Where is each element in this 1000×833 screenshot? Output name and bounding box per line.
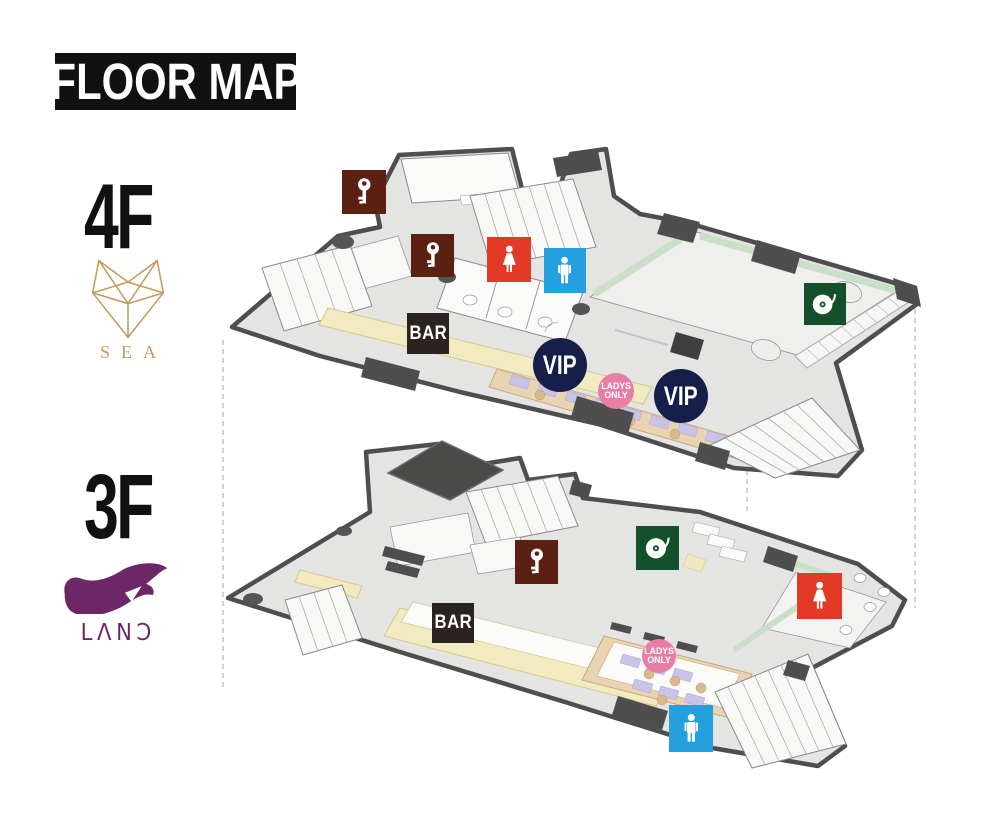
dj-booth-icon [642, 530, 674, 565]
brand-name-land: LΛNƆ [64, 620, 167, 646]
dj-booth-badge-3f [636, 526, 679, 570]
vip-label: VIP [543, 350, 577, 381]
mens-restroom-icon [549, 253, 580, 289]
key-icon [521, 544, 553, 579]
bar-label: BAR [409, 323, 447, 345]
ladys-only-line2: ONLY [604, 390, 627, 401]
brand-name-sea: SEA [64, 342, 192, 363]
floor-label-4f: 4F [84, 180, 152, 254]
ladys-only-line2: ONLY [647, 655, 670, 666]
womens-restroom-badge-4f [487, 237, 531, 282]
page-title: FLOOR MAP [55, 53, 296, 110]
mens-restroom-icon [675, 710, 708, 748]
womens-restroom-badge-3f [797, 573, 842, 619]
dj-booth-badge-4f [804, 283, 846, 325]
bar-badge-4f: BAR [407, 313, 449, 354]
room-key-badge-3f [515, 540, 558, 584]
sea-fox-logo [80, 256, 176, 342]
key-icon [417, 238, 449, 272]
bar-badge-3f: BAR [432, 603, 474, 643]
ladys-only-badge-3f: LADYS ONLY [642, 639, 676, 673]
land-fox-logo [60, 556, 172, 614]
room-key-badge-4f-b [411, 234, 454, 277]
womens-restroom-icon [493, 242, 526, 278]
floor-plans-illustration [0, 0, 1000, 833]
mens-restroom-badge-3f [669, 705, 713, 752]
womens-restroom-icon [803, 578, 836, 615]
key-icon [348, 174, 381, 209]
bar-label: BAR [434, 612, 472, 634]
mens-restroom-badge-4f [544, 248, 586, 293]
page-title-text: FLOOR MAP [50, 52, 301, 111]
vip-area-badge-4f-a: VIP [533, 338, 587, 392]
floor-label-3f: 3F [84, 470, 152, 544]
vip-area-badge-4f-b: VIP [654, 369, 708, 423]
ladys-only-badge-4f: LADYS ONLY [598, 373, 634, 409]
dj-booth-icon [809, 287, 840, 321]
room-key-badge-4f-a [342, 170, 386, 214]
vip-label: VIP [664, 381, 698, 412]
